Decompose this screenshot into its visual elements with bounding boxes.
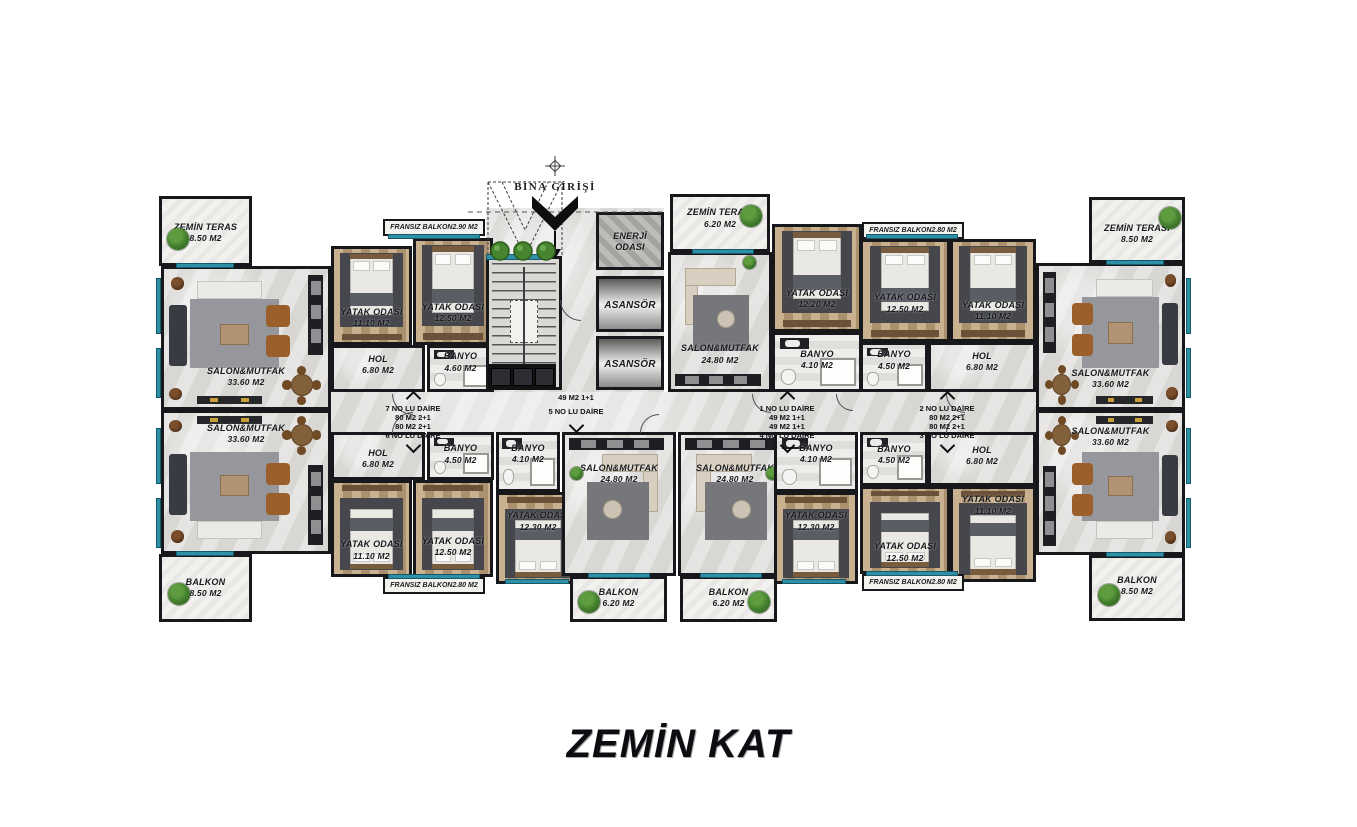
appliance (1045, 303, 1054, 318)
sofa-white (197, 521, 263, 539)
window-strip (156, 498, 161, 548)
blanket (970, 523, 1016, 536)
toilet (782, 370, 795, 384)
room-teras-2: ZEMİN TERASI8.50 M2 (1089, 197, 1185, 263)
room-yatak-4: YATAK ODASI12.30 M2 (774, 492, 858, 584)
blanket (515, 528, 560, 540)
room-salon-1: SALON&MUTFAK24.80 M2 (668, 252, 772, 392)
dining-chair (1045, 380, 1053, 389)
toilet (868, 466, 878, 478)
blanket (432, 289, 475, 304)
plant-icon (169, 420, 182, 432)
blanket (432, 518, 475, 531)
sink (437, 439, 448, 444)
appliance (311, 281, 321, 295)
floor-plan: ZEMİN TERAS8.50 M2SALON&MUTFAK33.60 M2SA… (0, 0, 1357, 827)
room-salon-3: SALON&MUTFAK33.60 M2 (1036, 410, 1185, 555)
wardrobe (507, 497, 569, 503)
window-strip (782, 579, 846, 584)
room-yatak-7a: YATAK ODASI11.10 M2 (331, 246, 412, 345)
toilet (504, 470, 513, 484)
room-yatak-3b: YATAK ODASI12.50 M2 (860, 486, 950, 574)
room-yatak-1: YATAK ODASI12.20 M2 (772, 224, 862, 332)
bush-icon (514, 242, 532, 260)
room-salon-7: SALON&MUTFAK33.60 M2 (161, 266, 331, 410)
shower (530, 458, 554, 486)
armchair (1072, 463, 1093, 485)
service-cell (514, 369, 532, 386)
appliance (709, 376, 723, 384)
bed (793, 232, 842, 299)
shower (819, 458, 852, 486)
pouf (604, 501, 621, 518)
wardrobe (783, 320, 850, 327)
pillow (435, 553, 451, 563)
bush-icon (167, 228, 189, 250)
dining-chair (312, 380, 321, 389)
window-strip (1186, 278, 1191, 334)
pouf (718, 311, 734, 327)
plant-icon (171, 277, 184, 289)
sink (870, 349, 881, 355)
wardrobe (961, 491, 1025, 497)
dining-chair (1071, 431, 1079, 440)
dining-chair (282, 430, 291, 439)
blanket (350, 293, 394, 307)
room-hol-3: HOL6.80 M2 (928, 432, 1036, 486)
pillow (818, 561, 835, 570)
room-hol-7: HOL6.80 M2 (331, 345, 425, 392)
bed-headboard (970, 247, 1016, 253)
blanket (350, 518, 394, 531)
shower (897, 364, 923, 387)
plant-icon (1165, 531, 1176, 544)
room-yatak-2b: YATAK ODASI11.10 M2 (950, 239, 1036, 342)
wardrobe (961, 330, 1025, 337)
pillow (995, 558, 1013, 568)
tv-accent (210, 398, 218, 402)
appliance (311, 520, 321, 534)
dining-table (1053, 375, 1070, 395)
pillow (995, 255, 1013, 265)
dining-chair (297, 416, 306, 425)
room-salon-5: SALON&MUTFAK24.80 M2 (562, 432, 676, 576)
window-strip (1106, 552, 1164, 557)
sink (870, 439, 881, 445)
coffee-table (1108, 476, 1134, 497)
dining-chair (1058, 395, 1066, 404)
tv-accent (210, 418, 218, 422)
plant-icon (1165, 274, 1176, 287)
pillow (353, 553, 370, 563)
floor-plan-page: ZEMİN TERAS8.50 M2SALON&MUTFAK33.60 M2SA… (0, 0, 1357, 827)
tv-unit (1096, 416, 1153, 424)
service-block (488, 364, 556, 390)
plant-icon (1166, 387, 1177, 400)
dining-chair (282, 380, 291, 389)
dining-chair (1045, 431, 1053, 440)
dining-chair (1071, 380, 1079, 389)
room-label: HOL6.80 M2 (931, 445, 1033, 467)
wardrobe (423, 333, 482, 340)
bush-highlight (540, 245, 546, 251)
room-hol-6: HOL6.80 M2 (331, 432, 425, 480)
room-balkon-sol: BALKON8.50 M2 (159, 554, 252, 622)
window-strip (692, 249, 754, 254)
kitchen-counter (685, 438, 780, 450)
appliance (685, 376, 699, 384)
kitchen-counter (569, 438, 664, 450)
room-asansor-1: ASANSÖR (596, 276, 664, 332)
bed (881, 513, 930, 567)
pillow (974, 255, 992, 265)
wardrobe (342, 485, 402, 491)
room-fransiz-3: FRANSIZ BALKON2.80 M2 (862, 574, 964, 591)
appliance (311, 305, 321, 319)
armchair (1072, 494, 1093, 516)
window-strip (588, 573, 650, 578)
room-banyo-7: BANYO4.60 M2 (427, 345, 494, 392)
toilet (435, 462, 445, 473)
room-banyo-3: BANYO4.50 M2 (860, 432, 928, 486)
appliance (1045, 278, 1054, 293)
room-asansor-2: ASANSÖR (596, 336, 664, 390)
bed-headboard (793, 572, 838, 577)
blanket (970, 288, 1016, 302)
toilet (868, 373, 878, 384)
pillow (907, 255, 926, 265)
room-yatak-3a: YATAK ODASI11.10 M2 (950, 486, 1036, 582)
window-strip (700, 573, 762, 578)
wardrobe (785, 497, 847, 503)
tv-accent (1108, 418, 1115, 422)
wardrobe (871, 330, 938, 337)
window-strip (1186, 348, 1191, 398)
dining-chair (297, 396, 306, 405)
room-balkon-sag: BALKON8.50 M2 (1089, 555, 1185, 621)
stair-divider (523, 267, 524, 380)
room-teras-1: ZEMİN TERASI6.20 M2 (670, 194, 770, 252)
pillow (907, 552, 926, 561)
tv-accent (1135, 418, 1142, 422)
pillow (885, 552, 904, 561)
sofa-white (1096, 279, 1153, 297)
room-yatak-2a: YATAK ODASI12.50 M2 (860, 239, 950, 342)
room-banyo-2: BANYO4.50 M2 (860, 342, 928, 392)
room-yatak-6b: YATAK ODASI12.50 M2 (413, 480, 493, 577)
room-salon-2: SALON&MUTFAK33.60 M2 (1036, 263, 1185, 410)
blanket (881, 288, 930, 302)
wardrobe (871, 491, 938, 497)
dining-set (1045, 365, 1079, 404)
service-cell (536, 369, 554, 386)
room-label: HOL6.80 M2 (931, 351, 1033, 373)
sofa-dark (169, 305, 187, 366)
room-banyo-1: BANYO4.10 M2 (772, 332, 862, 392)
blanket (793, 275, 842, 290)
bush-icon (743, 256, 756, 269)
sofa-white (197, 281, 263, 299)
window-strip (1106, 260, 1164, 265)
compass-icon (545, 156, 565, 176)
dining-chair (1058, 446, 1066, 455)
pillow (455, 553, 471, 563)
tv-unit (197, 396, 263, 404)
bed (793, 520, 838, 577)
tv-unit (1096, 396, 1153, 404)
tv-accent (241, 398, 249, 402)
appliance (1045, 327, 1054, 342)
bed-headboard (881, 247, 930, 253)
dining-table (1053, 425, 1070, 444)
kitchen-counter (675, 374, 761, 386)
plant-icon (169, 388, 182, 400)
tv-unit (197, 416, 263, 424)
bush-icon (537, 242, 555, 260)
bed-headboard (515, 572, 560, 577)
window-strip (866, 234, 958, 239)
bush-icon (1159, 207, 1181, 229)
appliance (607, 440, 622, 448)
toilet (783, 470, 795, 484)
room-label: HOL6.80 M2 (334, 448, 422, 470)
dining-chair (1058, 365, 1066, 374)
wardrobe (423, 485, 482, 491)
window-strip (156, 278, 161, 334)
tv-accent (1135, 398, 1142, 402)
kitchen-counter (308, 465, 323, 545)
room-balkon-5: BALKON6.20 M2 (570, 576, 667, 622)
bush-icon (491, 242, 509, 260)
pillow (540, 561, 557, 570)
room-yatak-6a: YATAK ODASI11.10 M2 (331, 480, 412, 577)
bed (432, 509, 475, 569)
window-strip (156, 428, 161, 484)
pillow (353, 261, 370, 271)
bed-headboard (350, 564, 394, 569)
pillow (819, 240, 838, 251)
shower (897, 455, 923, 480)
coffee-table (220, 324, 250, 345)
room-fransiz-6: FRANSIZ BALKON2.80 M2 (383, 577, 485, 594)
room-label: HOL6.80 M2 (334, 354, 422, 376)
bush-highlight (517, 245, 523, 251)
appliance (734, 376, 748, 384)
bush-icon (168, 583, 190, 605)
bed-headboard (793, 232, 842, 238)
pillow (435, 254, 451, 265)
bed-headboard (970, 569, 1016, 574)
appliance (581, 440, 596, 448)
kitchen-counter (1043, 272, 1056, 354)
corridor-floor (331, 392, 1036, 432)
kitchen-counter (308, 275, 323, 355)
dining-set (1045, 416, 1079, 455)
entrance-label: BİNA GİRİŞİ (514, 181, 596, 193)
bed (350, 254, 394, 315)
room-banyo-5: BANYO4.10 M2 (496, 432, 560, 492)
bush-icon (1098, 584, 1120, 606)
appliance (723, 440, 738, 448)
bush-icon (748, 591, 770, 613)
dining-chair (312, 430, 321, 439)
plant-icon (171, 530, 184, 542)
window-strip (156, 348, 161, 398)
sofa-dark (1162, 455, 1178, 516)
bed (970, 247, 1016, 311)
pillow (519, 561, 536, 570)
entrance-assembly: BİNA GİRİŞİ (460, 152, 670, 272)
room-banyo-6: BANYO4.50 M2 (427, 432, 494, 480)
pillow (885, 255, 904, 265)
bed (350, 509, 394, 569)
bed (515, 520, 560, 577)
bed-headboard (350, 254, 394, 260)
appliance (1045, 472, 1054, 487)
dining-table (292, 375, 312, 394)
room-teras-sol: ZEMİN TERAS8.50 M2 (159, 196, 252, 266)
sofa-beige (602, 454, 658, 472)
window-strip (176, 263, 234, 268)
service-cell (492, 369, 510, 386)
dining-set (282, 366, 321, 405)
armchair (1072, 334, 1093, 357)
dining-chair (1058, 416, 1066, 425)
appliance (697, 440, 712, 448)
room-balkon-4: BALKON6.20 M2 (680, 576, 777, 622)
dining-chair (297, 366, 306, 375)
appliance (311, 496, 321, 510)
sofa-white (1096, 521, 1153, 539)
window-strip (1186, 428, 1191, 484)
window-strip (176, 551, 234, 556)
pillow (797, 240, 816, 251)
appliance (634, 440, 649, 448)
sink (785, 340, 800, 347)
appliance (311, 472, 321, 486)
dining-chair (297, 446, 306, 455)
armchair (266, 335, 291, 357)
pillow (373, 261, 390, 271)
blanket (881, 520, 930, 532)
tv-accent (1108, 398, 1115, 402)
shower (463, 365, 489, 386)
bed (970, 515, 1016, 574)
armchair (266, 305, 291, 327)
pillow (797, 561, 814, 570)
sink (437, 352, 448, 357)
sofa-dark (169, 454, 187, 515)
dining-table (292, 425, 312, 444)
window-strip (505, 579, 569, 584)
blanket (793, 528, 838, 540)
armchair (266, 463, 291, 485)
pillow (974, 558, 992, 568)
sofa-beige (696, 454, 752, 472)
bed (881, 247, 930, 311)
pouf (733, 501, 750, 518)
toilet (435, 374, 445, 385)
coffee-table (220, 475, 250, 496)
plant-icon (1166, 420, 1177, 433)
appliance (750, 440, 765, 448)
bush-icon (570, 467, 583, 480)
appliance (1045, 496, 1054, 511)
shower (463, 453, 489, 475)
bush-highlight (494, 245, 500, 251)
kitchen-counter (1043, 466, 1056, 547)
bush-icon (740, 205, 762, 227)
room-hol-2: HOL6.80 M2 (928, 342, 1036, 392)
wardrobe (342, 334, 402, 341)
room-label: ASANSÖR (599, 300, 661, 313)
window-strip (388, 574, 480, 579)
window-strip (1186, 498, 1191, 548)
bed-headboard (432, 564, 475, 569)
appliance (1045, 521, 1054, 536)
sofa-beige (685, 268, 736, 285)
room-salon-6: SALON&MUTFAK33.60 M2 (161, 410, 331, 554)
floor-title: ZEMİN KAT (0, 722, 1357, 766)
pillow (373, 553, 390, 563)
sink (506, 440, 516, 447)
sofa-dark (1162, 303, 1178, 365)
shower (820, 358, 855, 386)
bed-headboard (881, 562, 930, 567)
armchair (266, 493, 291, 515)
armchair (1072, 303, 1093, 326)
window-strip (866, 571, 958, 576)
sink (786, 440, 800, 447)
room-label: ASANSÖR (599, 359, 661, 372)
appliance (311, 329, 321, 343)
room-banyo-4: BANYO4.10 M2 (774, 432, 858, 492)
dining-set (282, 416, 321, 455)
bush-icon (578, 591, 600, 613)
coffee-table (1108, 322, 1134, 343)
tv-accent (241, 418, 249, 422)
